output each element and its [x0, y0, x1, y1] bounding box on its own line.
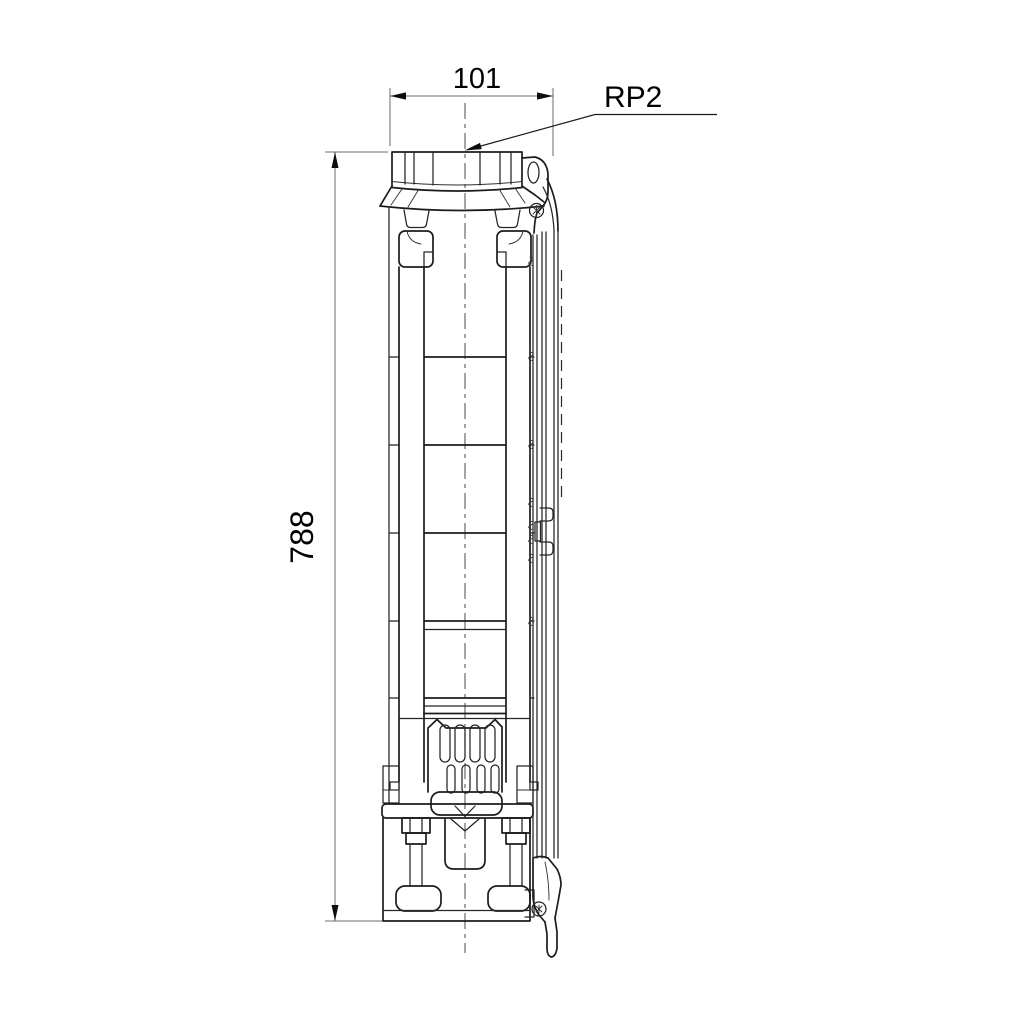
dim-arrow-right — [537, 92, 553, 99]
height-dimension-value: 788 — [284, 510, 320, 563]
dim-arrow-left — [390, 92, 406, 99]
pump-sleeve — [389, 207, 538, 804]
discharge-head — [380, 152, 544, 228]
technical-drawing: 101 RP2 788 — [0, 0, 1024, 1024]
connection-label: RP2 — [604, 81, 662, 114]
cable-guard-top-bracket — [522, 157, 558, 233]
cable-guard — [529, 231, 562, 957]
width-dimension-value: 101 — [453, 63, 501, 95]
cable-guard-bottom-clamp — [532, 857, 561, 958]
bracket-slot — [528, 162, 539, 183]
width-dimension: 101 — [390, 63, 553, 156]
connection-callout: RP2 — [465, 81, 718, 151]
dim-arrow-down — [332, 905, 339, 921]
leader-arrowhead — [465, 143, 482, 151]
motor-section — [383, 818, 534, 921]
drawing-canvas: 101 RP2 788 — [0, 0, 1024, 1024]
dim-arrow-up — [332, 152, 339, 168]
